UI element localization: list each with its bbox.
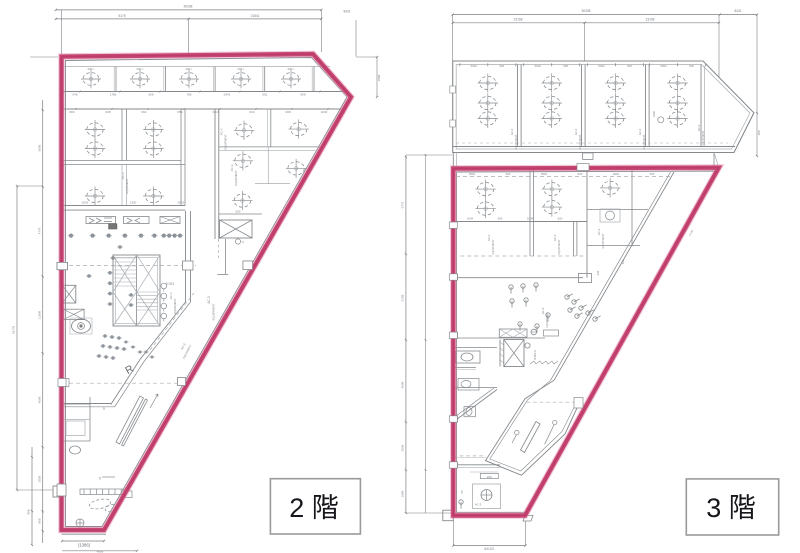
svg-text:500: 500 [498,217,503,221]
svg-text:8431: 8431 [343,10,350,14]
svg-text:0002: 0002 [82,201,89,205]
svg-text:5: 5 [103,407,105,411]
svg-text:AC-3: AC-3 [697,124,701,131]
svg-text:EQUIPMENT: EQUIPMENT [579,134,582,149]
svg-text:500: 500 [627,64,632,68]
svg-text:189: 189 [486,475,491,479]
svg-text:18778: 18778 [12,325,16,334]
svg-text:AC-3: AC-3 [121,172,125,179]
svg-text:5108: 5108 [401,294,405,301]
svg-text:5008: 5008 [37,144,41,151]
svg-text:AC-3: AC-3 [169,292,173,299]
svg-text:061 I: 061 I [238,67,245,71]
svg-text:AC-3: AC-3 [220,128,224,135]
svg-text:EQUIPMENT: EQUIPMENT [125,178,129,194]
svg-text:EQUIPMENT: EQUIPMENT [702,130,705,145]
svg-text:0002: 0002 [613,172,620,176]
svg-text:AC-3: AC-3 [638,128,642,135]
svg-text:21841: 21841 [251,14,260,18]
svg-text:786: 786 [186,93,191,97]
svg-text:1040: 1040 [321,110,328,114]
svg-text:4598: 4598 [37,396,41,403]
svg-text:008: 008 [105,110,110,114]
svg-text:EQUIPMENT: EQUIPMENT [643,134,646,149]
svg-text:EQUIPMENT: EQUIPMENT [515,134,518,149]
svg-text:AC-3: AC-3 [574,128,578,135]
svg-text:AC-3: AC-3 [553,234,557,241]
svg-text:0002: 0002 [535,64,542,68]
svg-text:5: 5 [99,477,101,481]
svg-text:061 I: 061 I [186,67,193,71]
svg-text:1888: 1888 [377,74,381,81]
svg-text:500: 500 [650,172,655,176]
svg-text:B4B1-9: B4B1-9 [533,350,537,360]
svg-text:908: 908 [300,93,305,97]
svg-text:0941: 0941 [224,93,231,97]
svg-text:500: 500 [563,64,568,68]
svg-text:EQUIPMENT: EQUIPMENT [558,239,561,254]
svg-text:034: 034 [249,110,254,114]
svg-text:EQUIPMENT: EQUIPMENT [212,303,216,320]
svg-text:061 I: 061 I [88,67,95,71]
svg-text:065: 065 [235,210,240,214]
svg-text:500: 500 [558,217,563,221]
svg-text:0002: 0002 [471,64,478,68]
svg-text:AC-3: AC-3 [487,234,491,241]
svg-text:500: 500 [499,64,504,68]
svg-text:1004: 1004 [527,217,534,221]
svg-text:4889: 4889 [97,550,104,553]
svg-text:05: 05 [460,490,464,494]
svg-text:23168: 23168 [514,18,523,22]
svg-text:3 階: 3 階 [706,493,756,523]
svg-text:AC-3: AC-3 [541,307,545,314]
svg-text:084: 084 [69,110,74,114]
svg-text:008: 008 [285,110,290,114]
svg-text:888: 888 [37,518,41,523]
svg-text:AC-3: AC-3 [475,503,482,507]
svg-text:EQUIPMENT: EQUIPMENT [546,312,549,327]
svg-text:446: 446 [596,270,600,275]
svg-text:54103: 54103 [484,547,494,551]
svg-text:0002: 0002 [541,172,548,176]
svg-text:4598: 4598 [401,381,405,388]
svg-text:2400: 2400 [652,110,656,117]
svg-text:500: 500 [578,172,583,176]
svg-text:0002: 0002 [660,64,667,68]
svg-text:0002: 0002 [469,172,476,176]
svg-text:888: 888 [27,509,31,514]
svg-text:AC-3: AC-3 [510,128,514,135]
svg-text:(1386): (1386) [78,543,91,548]
svg-text:046: 046 [72,93,77,97]
svg-text:5175: 5175 [118,14,125,18]
svg-text:23168: 23168 [646,18,655,22]
svg-text:054: 054 [177,110,182,114]
svg-text:11008: 11008 [37,311,41,319]
svg-text:061 I: 061 I [288,67,295,71]
svg-text:0002: 0002 [598,64,605,68]
svg-text:188: 188 [757,130,761,135]
svg-text:AC-3: AC-3 [230,164,234,171]
svg-text:500: 500 [689,64,694,68]
svg-text:EQUIPMENT: EQUIPMENT [234,170,238,186]
svg-text:AC-3: AC-3 [207,296,211,303]
svg-text:3008: 3008 [37,475,41,482]
svg-text:50308: 50308 [184,5,193,9]
svg-text:6776: 6776 [401,201,405,208]
svg-text:500: 500 [506,172,511,176]
svg-text:061 I: 061 I [137,67,144,71]
svg-text:AC-3: AC-3 [597,228,601,235]
svg-text:8431: 8431 [734,9,741,13]
svg-text:2 階: 2 階 [289,493,339,523]
svg-text:0 003: 0 003 [166,282,174,286]
svg-text:1786: 1786 [110,93,117,97]
svg-text:1888: 1888 [401,490,405,497]
svg-text:1004: 1004 [467,217,474,221]
svg-text:4778: 4778 [37,227,41,234]
svg-text:50308: 50308 [582,9,591,13]
svg-text:EQUIPMENT: EQUIPMENT [224,134,228,150]
svg-text:006: 006 [148,93,153,97]
svg-text:EQUIPMENT: EQUIPMENT [492,239,495,254]
svg-text:091: 091 [141,110,146,114]
svg-text:0002: 0002 [178,201,185,205]
svg-text:EQUIPMENT: EQUIPMENT [173,298,177,314]
svg-text:061: 061 [262,93,267,97]
svg-text:3008: 3008 [401,444,405,451]
svg-text:1300: 1300 [130,201,137,205]
svg-text:EQUIPMENT: EQUIPMENT [602,233,605,248]
